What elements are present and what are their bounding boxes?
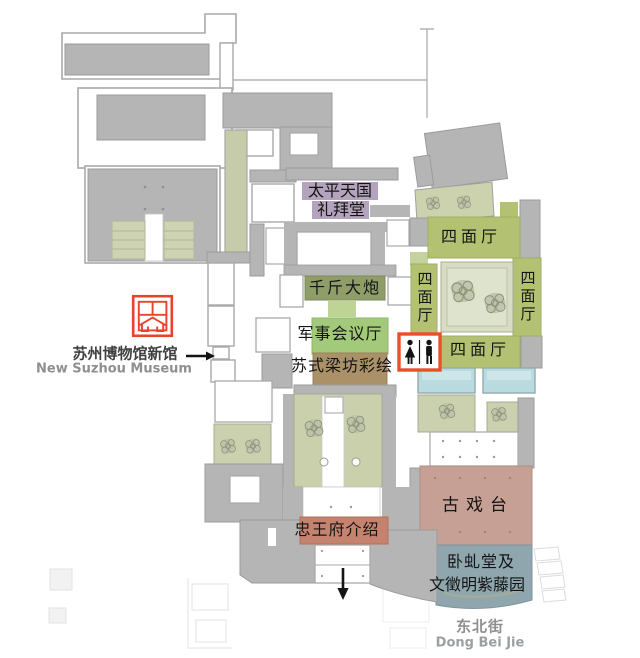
- label-street-en: Dong Bei Jie: [436, 637, 525, 650]
- west-entrance: [208, 263, 235, 382]
- entrance-arrow: [186, 352, 215, 361]
- label-military-hall: 军事会议厅: [297, 326, 382, 342]
- faint-steps-right: [534, 547, 566, 602]
- label-museum-en: New Suzhou Museum: [36, 363, 192, 376]
- label-wisteria-line1: 卧虬堂及: [447, 554, 515, 570]
- label-taiping-line1: 太平天国: [308, 183, 372, 199]
- label-hall-right: 四面厅: [520, 270, 535, 324]
- restroom-icon: [399, 334, 440, 370]
- label-wisteria-line2: 文徵明紫藤园: [429, 577, 525, 593]
- label-ancient-stage: 古戏台: [442, 498, 514, 515]
- pools-and-east-court: [418, 368, 535, 468]
- label-beam-paintings: 苏式梁坊彩绘: [291, 358, 393, 374]
- museum-complex: [62, 14, 236, 263]
- label-taiping-line2: 礼拜堂: [317, 202, 365, 218]
- label-cannon: 千斤大炮: [309, 280, 381, 296]
- label-zhongwangfu-intro: 忠王府介绍: [294, 522, 379, 538]
- label-street-cn: 东北街: [456, 620, 504, 635]
- label-museum-cn: 苏州博物馆新馆: [72, 347, 177, 362]
- label-hall-left: 四面厅: [417, 271, 432, 325]
- site-map: 太平天国 礼拜堂 千斤大炮 军事会议厅 苏式梁坊彩绘 四面厅 四面厅 四面厅 四…: [0, 0, 640, 658]
- label-hall-top: 四面厅: [441, 229, 501, 245]
- small-lawn: [328, 301, 356, 317]
- suzhou-museum-logo: [133, 296, 172, 336]
- label-hall-bottom: 四面厅: [450, 342, 510, 358]
